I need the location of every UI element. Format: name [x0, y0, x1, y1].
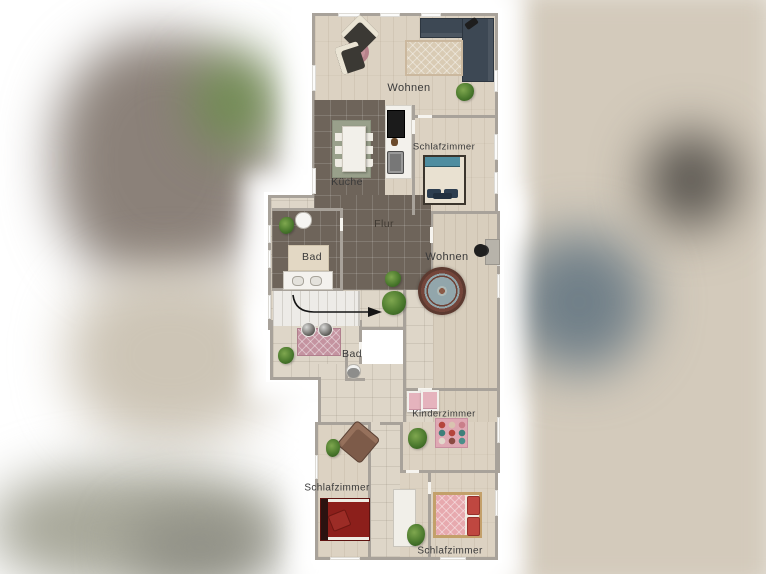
oven [387, 151, 404, 174]
room-label-bath-lower: Bad [342, 348, 362, 360]
bed-pillow [467, 496, 480, 515]
toilet [346, 364, 361, 379]
wall [400, 422, 403, 470]
double-bed-teal [423, 155, 466, 205]
window [440, 557, 466, 560]
window [312, 168, 316, 194]
window [315, 455, 318, 479]
wall [270, 377, 318, 380]
room-label-bedroom-right: Schlafzimmer [417, 546, 482, 557]
stairs [273, 291, 360, 326]
room-label-kids-room: Kinderzimmer [412, 409, 475, 420]
toilet [295, 212, 312, 229]
door-opening [428, 482, 431, 494]
window [268, 295, 271, 319]
window [497, 417, 500, 443]
backdrop-blob-rug-circle [510, 232, 648, 372]
bed-pillow [467, 517, 480, 536]
door-opening [406, 470, 419, 473]
wall [380, 422, 400, 425]
room-label-bath-upper: Bad [302, 251, 322, 263]
wall [318, 377, 321, 425]
window [380, 13, 400, 17]
backdrop-blob-green [195, 55, 273, 147]
window [497, 274, 500, 298]
round-oriental-rug [418, 267, 466, 315]
door-opening [418, 115, 432, 118]
door-opening [430, 227, 433, 243]
room-label-living-mid: Wohnen [425, 251, 468, 263]
door-opening [340, 218, 343, 231]
floorplan-screenshot: Wohnen Küche Schlafzimmer Flur Bad Wohne… [0, 0, 766, 574]
double-bed-pink [433, 492, 482, 538]
stove [387, 110, 405, 138]
room-label-bedroom-left: Schlafzimmer [304, 483, 369, 494]
desk [485, 239, 500, 265]
washbasin [318, 322, 333, 337]
backdrop-blob-dark [645, 132, 737, 228]
floor-plan: Wohnen Küche Schlafzimmer Flur Bad Wohne… [268, 12, 502, 564]
window [494, 172, 498, 194]
wall [272, 208, 340, 211]
window [421, 13, 441, 17]
window [268, 225, 271, 243]
washbasin [310, 276, 322, 286]
dining-table [342, 126, 366, 172]
area-rug [405, 40, 463, 76]
bed-pillow [328, 509, 352, 532]
window [312, 65, 316, 91]
window [495, 490, 498, 516]
sink-counter [283, 271, 333, 290]
washbasin [292, 276, 304, 286]
dining-chairs [365, 129, 373, 167]
room-label-hallway: Flur [374, 218, 394, 230]
window [330, 557, 360, 560]
bed-headboard [425, 157, 460, 167]
door-opening [412, 120, 415, 134]
window [494, 134, 498, 160]
washbasin [301, 322, 316, 337]
kitchen-item [391, 138, 398, 146]
play-rug [435, 418, 468, 448]
window [494, 70, 498, 92]
backdrop-blob-beige-left [68, 268, 273, 443]
room-label-living-top: Wohnen [387, 82, 430, 94]
room-label-kitchen: Küche [331, 176, 363, 188]
window [268, 250, 271, 268]
bed-blanket [436, 495, 465, 535]
room-label-bedroom-top: Schlafzimmer [413, 142, 475, 153]
bed-headboard [321, 499, 328, 540]
backdrop-blob-darkgray [128, 512, 273, 574]
double-bed-red [320, 498, 370, 541]
bed-bench [433, 193, 452, 199]
office-chair [474, 244, 487, 257]
